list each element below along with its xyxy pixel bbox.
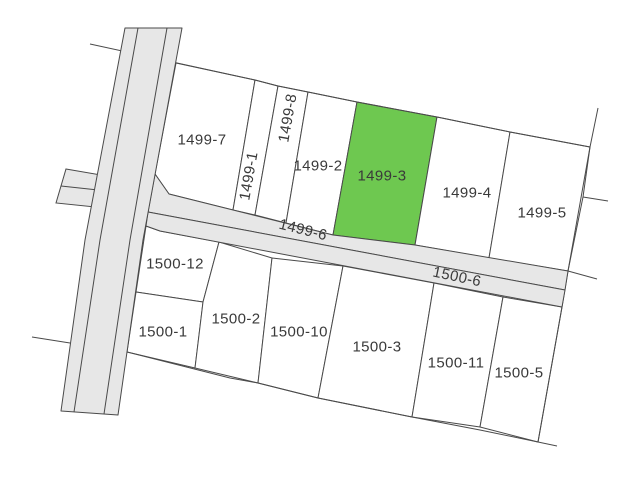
parcel-label-1500-1: 1500-1	[138, 324, 187, 341]
parcel-label-1500-10: 1500-10	[270, 324, 328, 341]
parcel-label-1500-5: 1500-5	[494, 365, 543, 382]
parcel-label-1500-2: 1500-2	[211, 311, 260, 328]
parcel-label-1499-3: 1499-3	[357, 168, 406, 185]
parcel-label-1499-5: 1499-5	[517, 205, 566, 222]
parcel-label-1500-3: 1500-3	[352, 339, 401, 356]
parcel-label-1499-2: 1499-2	[293, 158, 342, 175]
parcel-label-1499-4: 1499-4	[442, 185, 491, 202]
parcel-label-1500-12: 1500-12	[146, 256, 204, 273]
cadastral-map: 1499-71499-11499-81499-21499-31499-41499…	[0, 0, 640, 480]
parcel-label-1499-7: 1499-7	[177, 132, 226, 149]
map-canvas: 1499-71499-11499-81499-21499-31499-41499…	[0, 0, 640, 480]
parcel-label-1500-11: 1500-11	[428, 355, 485, 372]
